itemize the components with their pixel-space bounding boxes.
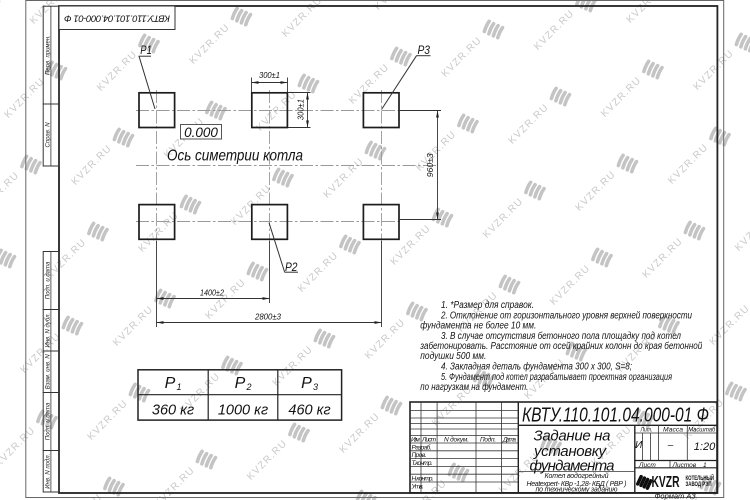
svg-text:960±3: 960±3 [426, 153, 435, 178]
svg-text:ЗАВОД РЭП: ЗАВОД РЭП [686, 481, 712, 488]
svg-text:1: 1 [703, 462, 707, 469]
svg-text:Масштаб: Масштаб [688, 425, 715, 433]
svg-text:КВТУ.110.101.04.000-01 Ф: КВТУ.110.101.04.000-01 Ф [522, 404, 709, 427]
svg-text:Котел водогрейный: Котел водогрейный [545, 472, 609, 480]
svg-text:Справ. N: Справ. N [46, 122, 52, 148]
svg-text:1400±2: 1400±2 [200, 288, 224, 297]
svg-text:3. В случае отсутствия бетонн: 3. В случае отсутствия бетонного пола пл… [441, 330, 681, 342]
svg-text:Инв. N дубл.: Инв. N дубл. [46, 313, 52, 348]
svg-text:Подп. и дата: Подп. и дата [46, 261, 52, 299]
svg-text:0.000: 0.000 [184, 125, 218, 140]
svg-text:Разраб.: Разраб. [412, 443, 432, 451]
svg-text:Дата: Дата [502, 437, 516, 444]
svg-text:фундамента: фундамента [530, 457, 615, 474]
svg-text:И: И [635, 440, 643, 451]
svg-text:300±1: 300±1 [259, 71, 280, 80]
svg-text:N докум.: N докум. [444, 436, 469, 444]
svg-text:Лист: Лист [638, 462, 656, 469]
svg-text:Подп.: Подп. [480, 436, 496, 444]
svg-text:Н.контр.: Н.контр. [412, 476, 434, 483]
svg-text:2800±3: 2800±3 [254, 312, 282, 321]
svg-text:по техническому заданию: по техническому заданию [536, 486, 619, 494]
svg-text:по нагрузкам на фундамент.: по нагрузкам на фундамент. [420, 381, 528, 393]
svg-text:Масса: Масса [663, 426, 683, 433]
svg-text:Пров.: Пров. [412, 452, 427, 459]
svg-text:5. Фундамент под котел разраб: 5. Фундамент под котел разрабатывает про… [441, 371, 672, 383]
svg-text:Утв.: Утв. [411, 484, 424, 491]
svg-text:KVZR: KVZR [652, 474, 680, 491]
svg-text:забетонировать. Расстояние от: забетонировать. Расстояние от осей крайн… [419, 340, 702, 352]
svg-text:Листов: Листов [672, 462, 697, 469]
svg-text:P1: P1 [140, 43, 152, 57]
svg-text:P: P [301, 375, 312, 392]
svg-text:Т.контр.: Т.контр. [412, 460, 433, 467]
svg-text:Ось симетрии котла: Ось симетрии котла [167, 148, 303, 165]
svg-text:–: – [667, 440, 674, 451]
svg-text:3: 3 [313, 382, 318, 392]
svg-text:Перв. примен.: Перв. примен. [46, 35, 52, 75]
svg-text:Взам. инв. N: Взам. инв. N [46, 354, 52, 390]
svg-text:КВТУ.110.101.04.000-01 Ф: КВТУ.110.101.04.000-01 Ф [64, 12, 170, 23]
svg-text:1000 кг: 1000 кг [218, 403, 268, 419]
svg-text:360 кг: 360 кг [152, 403, 194, 419]
svg-text:Лист: Лист [421, 437, 437, 444]
svg-text:Формат А3: Формат А3 [654, 492, 696, 500]
svg-text:Инв. N подл.: Инв. N подл. [46, 454, 52, 489]
svg-text:2: 2 [245, 382, 251, 392]
svg-text:фундамента не более 10 мм.: фундамента не более 10 мм. [420, 320, 536, 332]
svg-text:Изм.: Изм. [411, 437, 420, 444]
svg-text:P: P [165, 375, 176, 392]
svg-text:P: P [235, 375, 246, 392]
svg-text:4. Закладная деталь фундамент: 4. Закладная деталь фундамента 300 х 300… [441, 361, 632, 373]
svg-text:Подп. и дата: Подп. и дата [46, 402, 52, 440]
svg-text:300±1: 300±1 [297, 99, 306, 120]
svg-text:460 кг: 460 кг [288, 403, 330, 419]
svg-text:P3: P3 [418, 43, 431, 57]
svg-text:1:20: 1:20 [694, 441, 716, 453]
svg-text:Лит.: Лит. [640, 426, 653, 433]
svg-text:1: 1 [176, 382, 181, 392]
